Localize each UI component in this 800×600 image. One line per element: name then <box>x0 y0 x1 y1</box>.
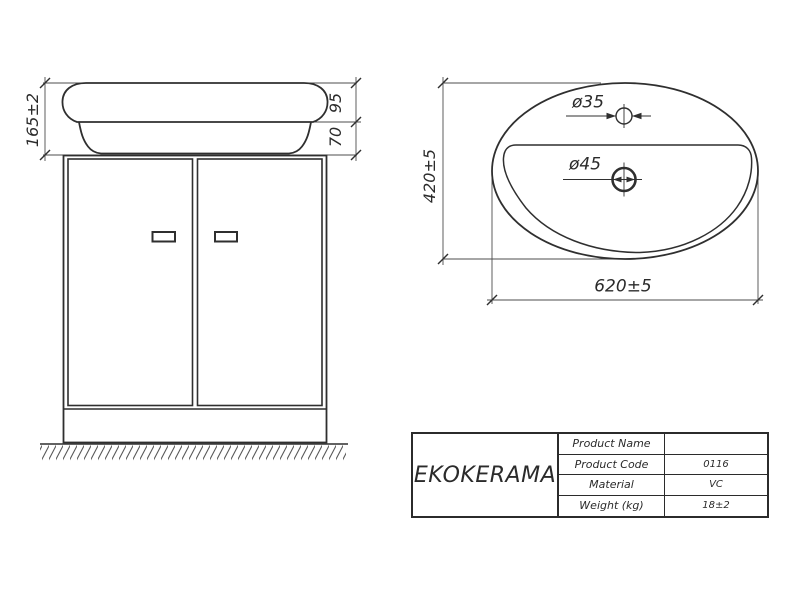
faucet-hole-dia-label: ø35 <box>572 95 604 112</box>
sink-bowl-front-outline <box>62 83 327 122</box>
title-block-value-product-code: 0116 <box>665 455 767 476</box>
title-block-label-weight: Weight (kg) <box>559 496 665 517</box>
title-block-value-material: VC <box>665 475 767 496</box>
front-base-height-dim: 70 <box>328 127 344 147</box>
drain-arrow-right <box>627 177 636 183</box>
sink-pedestal-front-outline <box>79 122 311 154</box>
title-block: EKOKERAMA Product Name Product Code 0116… <box>411 432 769 518</box>
faucet-arrow-left <box>607 113 617 119</box>
technical-drawing-sheet: 165±2 95 70 420±5 620±5 ø35 ø45 EKOKERAM… <box>0 0 800 600</box>
drain-hole-dia-label: ø45 <box>569 157 601 174</box>
front-view <box>40 77 361 461</box>
top-width-dim: 620±5 <box>594 279 652 296</box>
title-block-value-weight: 18±2 <box>665 496 767 517</box>
basin-outer-rim <box>492 83 758 259</box>
front-basin-height-dim: 95 <box>328 93 344 113</box>
title-block-label-product-name: Product Name <box>559 434 665 455</box>
front-total-height-dim: 165±2 <box>25 93 41 147</box>
title-block-label-product-code: Product Code <box>559 455 665 476</box>
ground-hatch <box>40 445 346 462</box>
faucet-arrow-right <box>632 113 642 119</box>
drain-arrow-left <box>613 177 622 183</box>
title-block-value-product-name <box>665 434 767 455</box>
top-depth-dim: 420±5 <box>422 149 438 203</box>
cabinet-outline <box>64 156 327 443</box>
title-block-label-material: Material <box>559 475 665 496</box>
brand-name: EKOKERAMA <box>413 434 559 516</box>
